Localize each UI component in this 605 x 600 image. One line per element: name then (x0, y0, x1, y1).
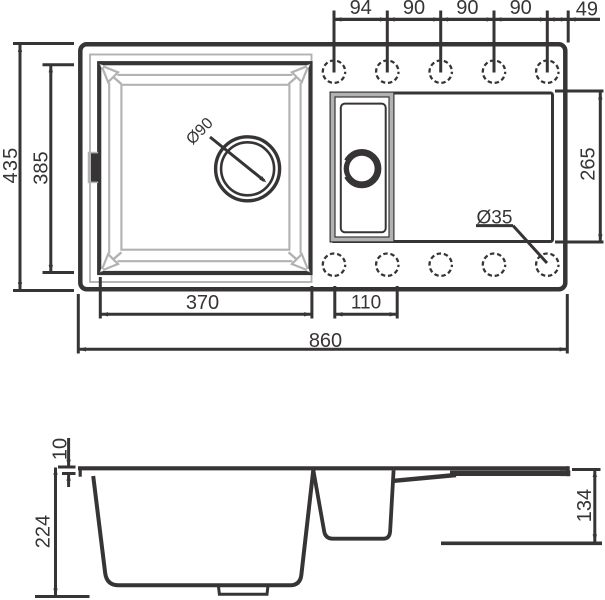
svg-text:134: 134 (574, 489, 596, 522)
svg-text:90: 90 (403, 0, 425, 19)
svg-text:94: 94 (350, 0, 372, 19)
svg-text:Ø90: Ø90 (183, 115, 216, 148)
svg-text:10: 10 (50, 438, 72, 460)
svg-text:224: 224 (33, 515, 55, 548)
svg-text:860: 860 (309, 330, 342, 352)
svg-text:435: 435 (0, 147, 22, 184)
svg-text:110: 110 (351, 293, 381, 314)
svg-text:49: 49 (576, 0, 598, 20)
svg-text:385: 385 (31, 151, 53, 184)
svg-text:370: 370 (186, 292, 219, 314)
svg-text:90: 90 (456, 0, 478, 19)
svg-text:265: 265 (578, 147, 600, 180)
svg-text:90: 90 (510, 0, 532, 19)
